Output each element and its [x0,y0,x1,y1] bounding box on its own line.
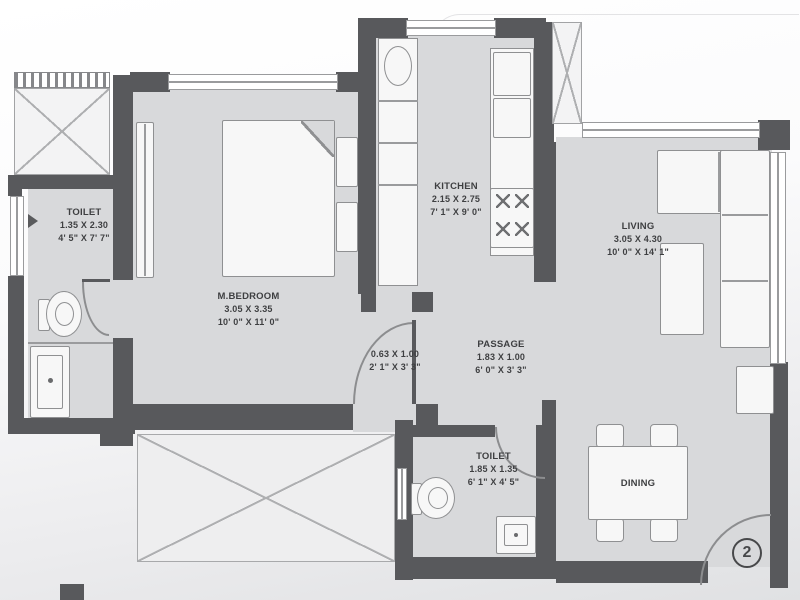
wall-segment [8,180,22,196]
room-label-dining: DINING [588,477,688,490]
room-name: M.BEDROOM [186,290,311,303]
wall-segment [113,75,133,192]
wardrobe-door-line [144,124,146,276]
sofa-cushion-line [722,214,768,216]
room-label-toilet-bottom: TOILET 1.85 X 1.35 6' 1" X 4' 5" [446,450,541,488]
hob-burner-icon [515,194,529,208]
wall-segment [412,292,433,312]
wall-segment [361,292,376,312]
wall-segment [556,561,708,583]
wall-segment [542,400,556,427]
bed-blanket-fold [301,121,334,157]
room-name: DINING [588,477,688,490]
hob-burner-icon [515,222,529,236]
wall-segment [534,22,554,142]
counter-line [378,142,418,144]
window [397,468,407,520]
window [10,196,24,276]
wall-column [60,584,84,600]
room-name: TOILET [446,450,541,463]
unit-number-badge: 2 [732,538,762,568]
floor-plan: TOILET 1.35 X 2.30 4' 5" X 7' 7" M.BEDRO… [0,0,800,600]
drain-dot [48,378,53,383]
wall-segment [113,338,133,420]
room-dim-ft: 4' 5" X 7' 7" [36,232,132,245]
cabinet [736,366,774,414]
wall-column [100,418,133,446]
wall-segment [133,404,353,430]
window [582,122,760,138]
room-dim-ft: 10' 0" X 11' 0" [186,316,311,329]
open-terrace [137,434,395,562]
room-name: PASSAGE [446,338,556,351]
room-dim-m: 0.63 X 1.00 [350,348,440,361]
unit-number: 2 [743,544,752,561]
wall-segment [376,18,408,38]
kitchen-platform-box [493,52,531,96]
bedside-table [336,137,358,187]
sofa-cushion-line [722,280,768,282]
window [168,74,338,90]
room-label-bedroom: M.BEDROOM 3.05 X 3.35 10' 0" X 11' 0" [186,290,311,328]
room-dim-m: 3.05 X 3.35 [186,303,311,316]
wall-segment [8,175,113,189]
wall-segment [758,120,790,150]
wall-segment [534,142,556,282]
wall-segment [336,72,360,92]
room-dim-ft: 10' 0" X 14' 1" [583,246,693,259]
kitchen-sink [384,46,412,86]
window [770,152,786,364]
room-name: KITCHEN [406,180,506,193]
wc-toilet-bowl [55,302,74,326]
room-dim-ft: 2' 1" X 3' 3" [350,361,440,374]
window [406,20,496,36]
room-name: TOILET [36,206,132,219]
dining-chair [596,424,624,448]
counter-line [378,100,418,102]
wall-segment [8,276,24,434]
room-dim-m: 1.35 X 2.30 [36,219,132,232]
room-label-living: LIVING 3.05 X 4.30 10' 0" X 14' 1" [583,220,693,258]
room-dim-ft: 7' 1" X 9' 0" [406,206,506,219]
hob-burner-icon [496,222,510,236]
door-leaf [82,279,110,282]
room-name: LIVING [583,220,693,233]
dining-chair [650,424,678,448]
room-dim-m: 1.83 X 1.00 [446,351,556,364]
wall-segment [130,72,170,92]
wc-toilet-bowl [428,487,448,509]
drain-dot [514,533,518,537]
divider-line [28,342,113,344]
duct-shaft [552,22,582,124]
room-dim-m: 1.85 X 1.35 [446,463,541,476]
louver-strip [14,72,110,88]
room-label-kitchen: KITCHEN 2.15 X 2.75 7' 1" X 9' 0" [406,180,506,218]
room-dim-ft: 6' 0" X 3' 3" [446,364,556,377]
wall-segment [413,425,495,437]
sofa-cushion-line [718,152,720,212]
room-dim-ft: 6' 1" X 4' 5" [446,476,541,489]
dining-chair [650,518,678,542]
wall-segment [395,557,556,579]
sofa-vertical [720,150,770,348]
dining-chair [596,518,624,542]
room-dim-m: 2.15 X 2.75 [406,193,506,206]
wall-segment [358,18,376,294]
room-label-passage: PASSAGE 1.83 X 1.00 6' 0" X 3' 3" [446,338,556,376]
bedside-table [336,202,358,252]
refrigerator [493,98,531,138]
room-dim-m: 3.05 X 4.30 [583,233,693,246]
duct-shaft [14,88,110,175]
room-label-lobby: 0.63 X 1.00 2' 1" X 3' 3" [350,348,440,373]
room-label-toilet-top: TOILET 1.35 X 2.30 4' 5" X 7' 7" [36,206,132,244]
